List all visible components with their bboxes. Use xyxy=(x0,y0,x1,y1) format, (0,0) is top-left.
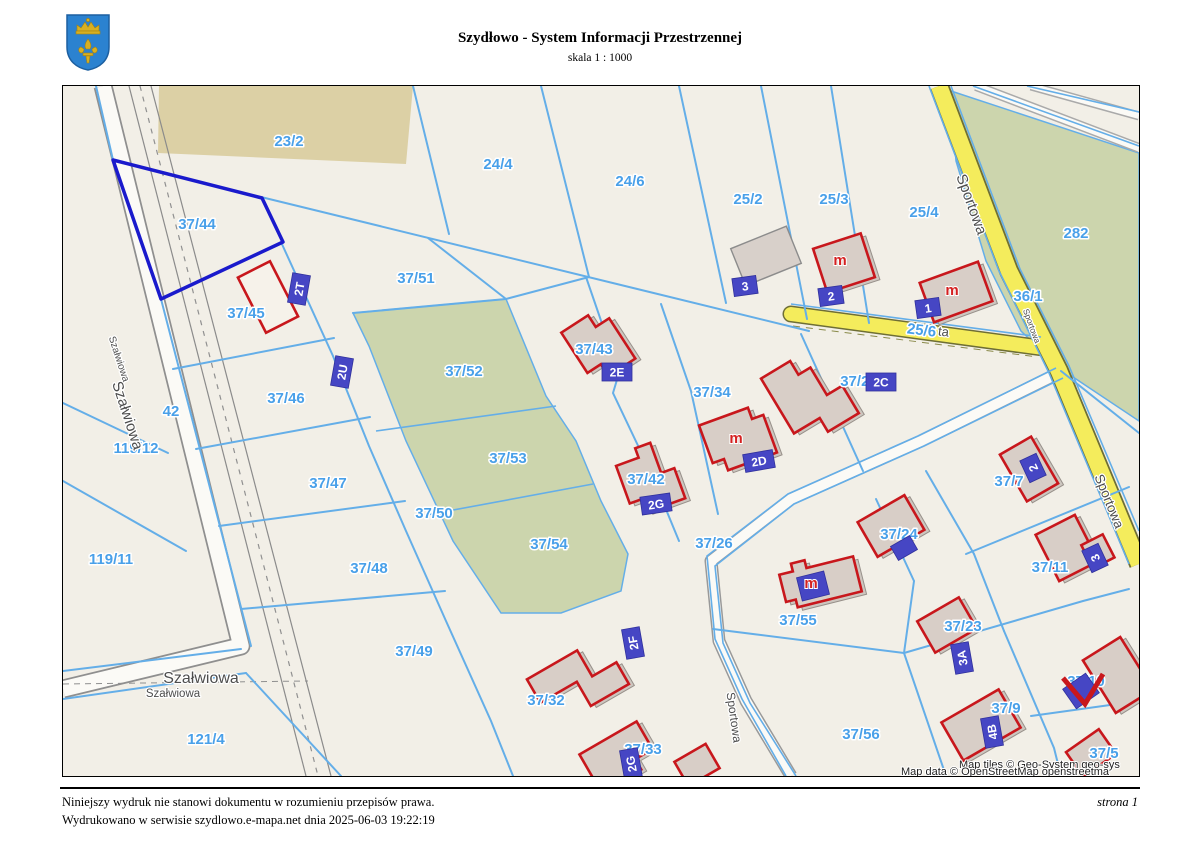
parcel-label: 37/11 xyxy=(1032,559,1069,576)
parcel-label: 37/53 xyxy=(489,450,527,467)
footer-page-number: strona 1 xyxy=(1097,795,1138,810)
building-marker-m: m xyxy=(833,252,846,269)
parcel-label: 37/46 xyxy=(267,390,305,407)
svg-text:2U: 2U xyxy=(334,363,350,381)
building-marker-m: m xyxy=(804,575,817,592)
svg-text:2C: 2C xyxy=(873,376,889,390)
area-tan-23-2 xyxy=(158,86,413,164)
parcel-label: 23/2 xyxy=(274,133,303,150)
footer-printed-info: Wydrukowano w serwisie szydlowo.e-mapa.n… xyxy=(62,813,435,828)
address-label: 2 xyxy=(818,285,844,306)
parcel-label: 24/4 xyxy=(483,156,513,173)
parcel-label: 37/23 xyxy=(944,618,982,635)
parcel-label: 37/49 xyxy=(395,643,433,660)
address-label: 2G xyxy=(640,493,672,515)
parcel-label: 25/4 xyxy=(909,204,939,221)
parcel-label: 37/52 xyxy=(445,363,483,380)
street-label-szalwiowa: Szałwiowa xyxy=(146,688,201,700)
address-label: 1 xyxy=(915,297,941,318)
parcel-label: 37/42 xyxy=(627,471,665,488)
svg-text:2G: 2G xyxy=(623,755,640,773)
address-label: 3 xyxy=(732,275,758,296)
svg-text:4B: 4B xyxy=(984,723,1001,741)
address-label: 2C xyxy=(866,373,896,391)
svg-text:2E: 2E xyxy=(610,366,625,380)
street-label-szalwiowa: Szałwiowa xyxy=(163,670,239,687)
attribution-data: Map data © OpenStreetMap openstreetma xyxy=(901,766,1110,776)
parcel-label: 42 xyxy=(163,403,180,420)
footer-disclaimer: Niniejszy wydruk nie stanowi dokumentu w… xyxy=(62,795,435,810)
footer-divider xyxy=(60,787,1140,789)
parcel-label: 37/9 xyxy=(991,700,1020,717)
address-label: 2E xyxy=(602,363,632,381)
parcel-label: 37/43 xyxy=(575,341,613,358)
parcel-label: 37/54 xyxy=(530,536,568,553)
building-marker-m: m xyxy=(945,282,958,299)
parcel-label: 37/56 xyxy=(842,726,880,743)
parcel-label: 37/47 xyxy=(309,475,347,492)
svg-text:2F: 2F xyxy=(625,635,641,651)
parcel-label: 37/45 xyxy=(227,305,265,322)
parcel-label: 121/4 xyxy=(187,731,225,748)
map-scale: skala 1 : 1000 xyxy=(0,52,1200,64)
parcel-label: 36/1 xyxy=(1013,288,1042,305)
parcel-label: 37/7 xyxy=(994,473,1023,490)
parcel-label: 37/44 xyxy=(178,216,216,233)
parcel-label: 37/50 xyxy=(415,505,453,522)
svg-text:2D: 2D xyxy=(750,453,768,470)
building-marker-m: m xyxy=(729,430,742,447)
page-title: Szydłowo - System Informacji Przestrzenn… xyxy=(0,30,1200,47)
parcel-label: 37/32 xyxy=(527,692,565,709)
svg-text:3A: 3A xyxy=(954,649,971,667)
parcel-label: 37/48 xyxy=(350,560,388,577)
map-canvas: 23/2 24/4 24/6 25/2 25/3 25/4 282 36/1 3… xyxy=(62,85,1140,777)
parcel-label: 37/51 xyxy=(397,270,435,287)
parcel-label: 24/6 xyxy=(615,173,644,190)
parcel-label: 37/34 xyxy=(693,384,731,401)
parcel-label: 119/11 xyxy=(89,551,133,568)
parcel-label: 282 xyxy=(1063,225,1088,242)
parcel-label: 37/26 xyxy=(695,535,733,552)
svg-text:2G: 2G xyxy=(647,496,665,512)
parcel-label: 25/6 xyxy=(906,320,937,340)
parcel-label: 25/3 xyxy=(819,191,848,208)
print-page: Szydłowo - System Informacji Przestrzenn… xyxy=(0,0,1200,848)
parcel-label: 25/2 xyxy=(733,191,762,208)
parcel-label: 37/55 xyxy=(779,612,817,629)
